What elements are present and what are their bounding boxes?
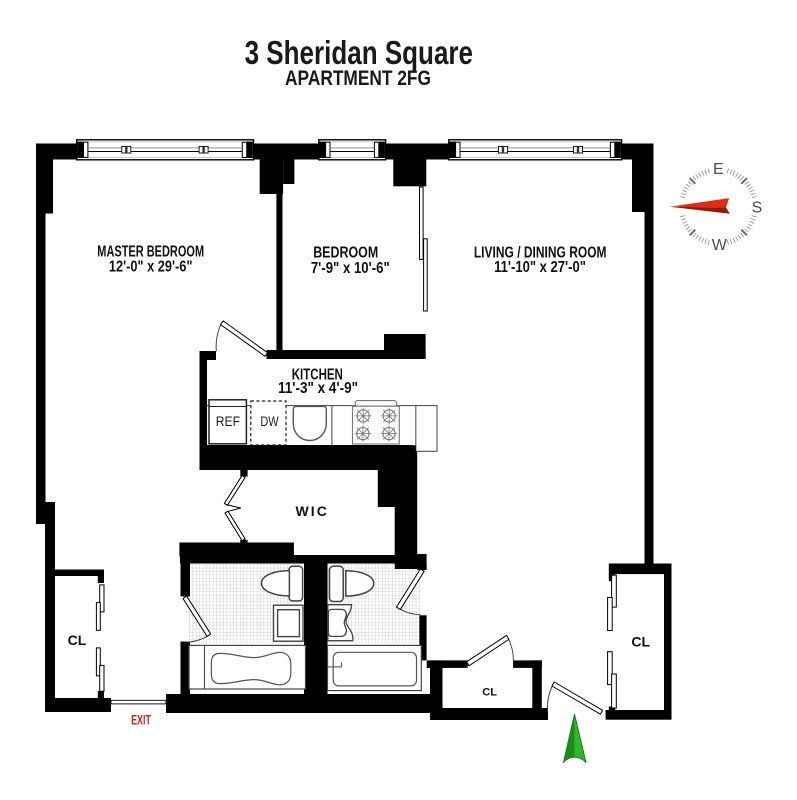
svg-text:W: W [712, 237, 728, 254]
svg-text:BEDROOM: BEDROOM [313, 245, 378, 262]
svg-text:APARTMENT 2FG: APARTMENT 2FG [285, 66, 431, 90]
svg-text:7'-9" x 10'-6": 7'-9" x 10'-6" [311, 260, 390, 277]
svg-text:12'-0" x 29'-6": 12'-0" x 29'-6" [109, 259, 193, 276]
svg-text:11'-10" x 27'-0": 11'-10" x 27'-0" [494, 259, 586, 276]
svg-text:S: S [752, 199, 763, 216]
svg-text:REF: REF [216, 414, 240, 429]
svg-text:CL: CL [482, 687, 497, 699]
svg-text:11'-3" x 4'-9": 11'-3" x 4'-9" [278, 380, 358, 397]
svg-text:CL: CL [631, 633, 650, 649]
svg-text:EXIT: EXIT [131, 713, 151, 728]
svg-text:DW: DW [260, 414, 279, 429]
svg-text:CL: CL [68, 632, 87, 648]
svg-text:E: E [713, 161, 724, 178]
svg-text:W I C: W I C [296, 503, 327, 519]
